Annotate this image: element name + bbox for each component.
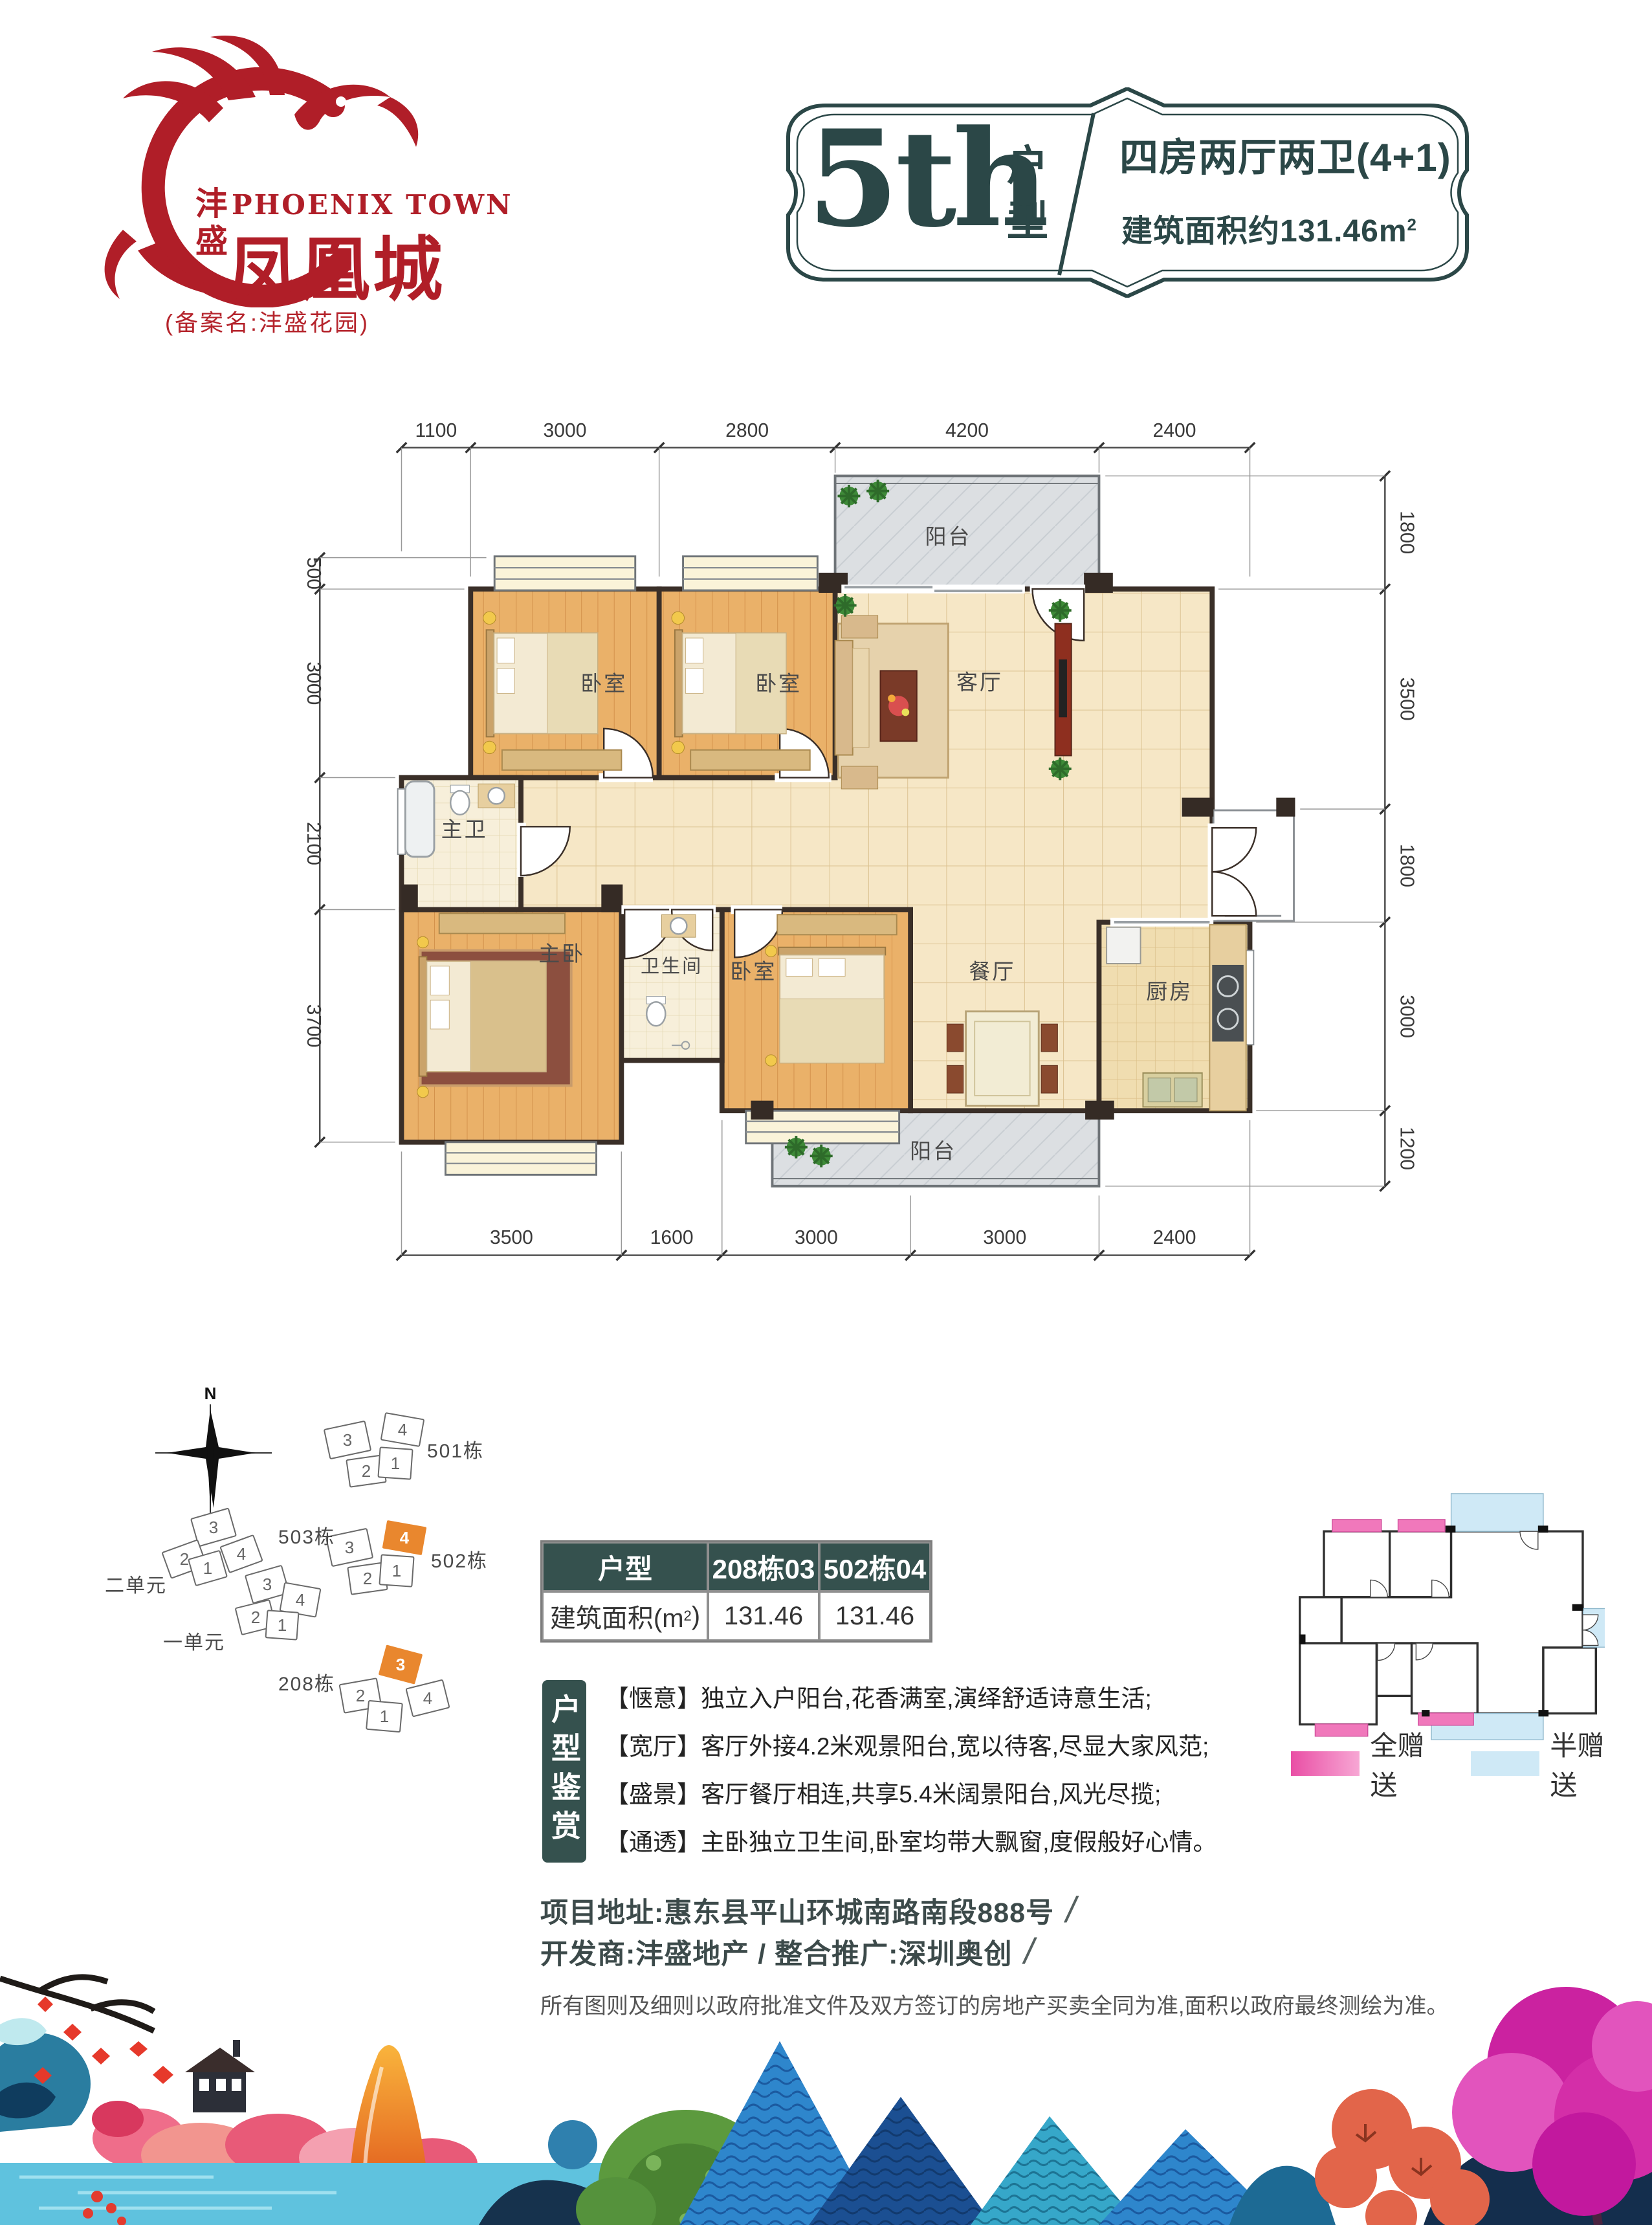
slash-decor: / (1066, 1889, 1077, 1930)
svg-text:2: 2 (363, 1569, 372, 1588)
room-label-master-bath: 主卫 (441, 817, 488, 841)
dim-left-3: 2100 (303, 822, 324, 865)
building-208-label: 208栋 (278, 1674, 335, 1695)
svg-text:3: 3 (345, 1538, 354, 1557)
dim-right-4: 3000 (1396, 995, 1418, 1038)
project-address: 项目地址:惠东县平山环城南路南段888号/ (540, 1888, 1077, 1931)
room-label-kitchen: 厨房 (1146, 979, 1193, 1003)
unit-area-table: 户型 208栋03 502栋04 建筑面积(m2) 131.46 131.46 (540, 1540, 932, 1643)
orange-peak (349, 2045, 428, 2184)
dim-right-1: 1800 (1396, 511, 1418, 554)
compass-north-label: N (204, 1385, 217, 1403)
divider-slash (1059, 113, 1094, 275)
dim-top-4: 4200 (945, 420, 989, 441)
poster-page: { "logo": { "brand_vertical": "沣盛", "bra… (0, 0, 1652, 2225)
appreciation-item: 【通透】主卧独立卫生间,卧室均带大飘窗,度假般好心情。 (605, 1819, 1265, 1866)
dim-bottom-5: 2400 (1153, 1227, 1196, 1248)
svg-text:3: 3 (396, 1655, 405, 1674)
svg-text:3: 3 (263, 1575, 272, 1594)
unit2-label: 二单元 (105, 1575, 167, 1597)
appreciation-side-label: 户型鉴赏 (542, 1680, 586, 1863)
layout-description: 四房两厅两卫(4+1) (1119, 126, 1451, 183)
svg-text:1: 1 (278, 1615, 287, 1635)
dim-top-1: 1100 (415, 420, 457, 441)
floor-plan: 阳台 卧室 卧室 客厅 主卫 主卧 卫生间 卧室 餐厅 厨房 阳台 1100 3… (238, 394, 1457, 1293)
svg-text:2: 2 (251, 1608, 260, 1627)
appreciation-item: 【宽厅】客厅外接4.2米观景阳台,宽以待客,尽显大家风范; (605, 1723, 1265, 1771)
blue-bush (548, 2120, 597, 2169)
table-header-208: 208栋03 (708, 1542, 819, 1591)
dim-bottom-3: 3000 (795, 1227, 838, 1248)
building-503-label: 503栋 (278, 1527, 335, 1548)
unit1-label: 一单元 (163, 1632, 225, 1654)
dim-right-2: 3500 (1396, 678, 1418, 721)
appreciation-item: 【惬意】独立入户阳台,花香满室,演绎舒适诗意生活; (605, 1675, 1265, 1723)
room-label-living: 客厅 (956, 670, 1003, 694)
building-502-label: 502栋 (431, 1551, 488, 1572)
svg-text:3: 3 (209, 1518, 218, 1537)
developer-line: 开发商:沣盛地产 / 整合推广:深圳奥创/ (540, 1930, 1035, 1972)
appreciation-item: 【盛景】客厅餐厅相连,共享5.4米阔景阳台,风光尽揽; (605, 1771, 1265, 1819)
full-gift-swatch (1291, 1751, 1360, 1776)
building-503: 3 2 1 4 3 4 2 1 503栋 二单元 一单元 (105, 1509, 335, 1654)
room-label-dining: 餐厅 (969, 959, 1015, 983)
room-label-balcony-top: 阳台 (925, 524, 971, 548)
dim-right-3: 1800 (1396, 844, 1418, 887)
room-label-bathroom: 卫生间 (641, 956, 703, 977)
building-501-label: 501栋 (427, 1441, 484, 1462)
house (185, 2040, 255, 2112)
dim-left-2: 3000 (303, 661, 324, 705)
dim-bottom-2: 1600 (650, 1227, 694, 1248)
dim-bottom-1: 3500 (490, 1227, 533, 1248)
svg-text:2: 2 (356, 1686, 365, 1705)
svg-text:3: 3 (343, 1430, 352, 1450)
title-plaque: 5th 户型 四房两厅两卫(4+1) 建筑面积约131.46m2 (767, 87, 1488, 298)
room-label-master-bedroom: 主卧 (538, 942, 585, 966)
svg-text:4: 4 (237, 1544, 246, 1564)
gift-area-mini-plan (1291, 1485, 1605, 1744)
area-description: 建筑面积约131.46m2 (1121, 205, 1417, 250)
svg-text:4: 4 (296, 1590, 305, 1610)
appreciation-list: 【惬意】独立入户阳台,花香满室,演绎舒适诗意生活; 【宽厅】客厅外接4.2米观景… (605, 1675, 1265, 1866)
table-area-502: 131.46 (819, 1591, 931, 1641)
svg-text:2: 2 (362, 1461, 371, 1481)
dim-top-3: 2800 (725, 420, 769, 441)
table-header-type: 户型 (542, 1542, 708, 1591)
dim-top-5: 2400 (1153, 420, 1196, 441)
slash-decor: / (1024, 1931, 1035, 1971)
dim-right-5: 1200 (1396, 1127, 1418, 1170)
room-label-bedroom1: 卧室 (580, 672, 627, 696)
svg-text:1: 1 (203, 1558, 212, 1578)
table-row: 建筑面积(m2) 131.46 131.46 (542, 1591, 931, 1641)
half-gift-label: 半赠送 (1550, 1724, 1627, 1803)
compass-icon: N (155, 1385, 272, 1514)
building-501: 3 4 2 1 501栋 (324, 1413, 484, 1487)
half-gift-swatch (1471, 1751, 1539, 1776)
table-row-label: 建筑面积(m2) (542, 1591, 708, 1641)
site-plan: N 3 4 2 1 501栋 3 4 2 1 502栋 (65, 1385, 615, 1877)
table-area-208: 131.46 (708, 1591, 819, 1641)
svg-text:4: 4 (400, 1528, 410, 1547)
room-label-bedroom2: 卧室 (755, 672, 802, 696)
table-header-502: 502栋04 (819, 1542, 931, 1591)
dim-left-1: 500 (303, 557, 324, 590)
landscape-illustration (0, 1969, 1652, 2225)
room-label-balcony-bottom: 阳台 (910, 1139, 956, 1163)
svg-text:1: 1 (380, 1707, 389, 1726)
dim-left-4: 3700 (303, 1004, 324, 1048)
logo-brand-chinese-short: 沣盛 (194, 186, 228, 261)
svg-text:4: 4 (398, 1420, 407, 1439)
svg-text:4: 4 (423, 1688, 432, 1708)
unit-type-label: 户型 (1005, 138, 1050, 249)
svg-text:1: 1 (392, 1561, 401, 1580)
svg-text:1: 1 (391, 1454, 400, 1473)
gift-legend: 全赠送 半赠送 (1291, 1749, 1627, 1778)
logo-brand-chinese: 凤凰城 (228, 214, 445, 315)
full-gift-label: 全赠送 (1370, 1724, 1448, 1803)
room-label-bedroom3: 卧室 (730, 959, 776, 983)
dim-top-2: 3000 (544, 420, 587, 441)
registered-name-note: (备案名:沣盛花园) (165, 304, 463, 338)
building-208: 3 2 1 4 208栋 (278, 1644, 450, 1732)
svg-text:2: 2 (180, 1549, 189, 1569)
dim-bottom-4: 3000 (983, 1227, 1026, 1248)
building-502: 3 4 2 1 502栋 (326, 1520, 488, 1595)
